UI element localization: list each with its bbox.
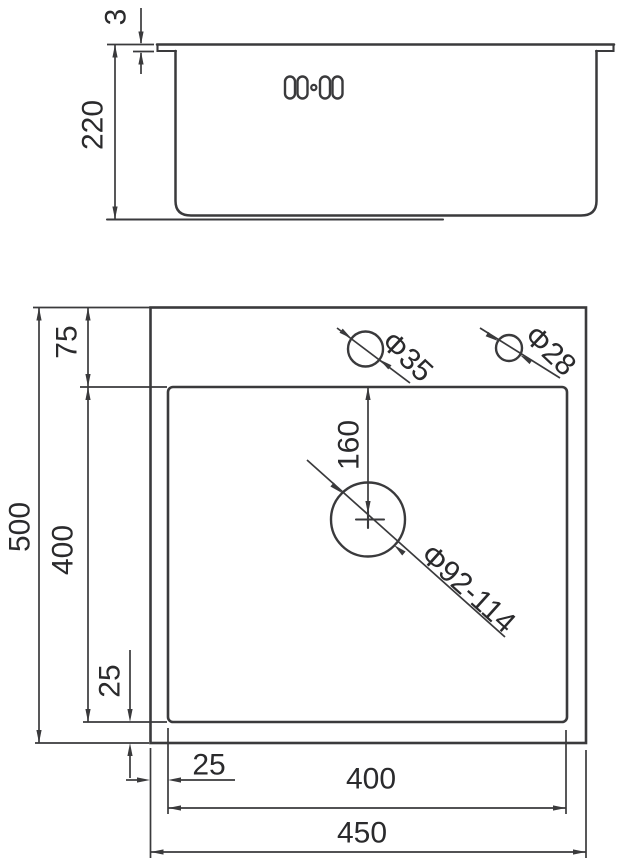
dim-label-rim-thickness: 3 (100, 9, 133, 26)
dim-label-bowl-depth: 220 (77, 100, 110, 150)
dim-label-overall-width: 450 (337, 817, 387, 850)
dim-bowl-left-offset: 25 (126, 749, 235, 783)
dim-label-accessory-hole: Φ28 (518, 319, 582, 382)
dim-label-bowl-bottom-offset: 25 (94, 664, 127, 697)
dim-rim-thickness: 3 (100, 8, 155, 74)
dim-overall-width: 450 (151, 817, 587, 855)
leader-faucet-hole: Φ35 (337, 325, 439, 388)
dim-ledge-offset: 75 (51, 308, 91, 388)
dim-overall-height: 500 (4, 308, 42, 744)
leader-drain-hole: Φ92-114 (307, 460, 522, 640)
drawing-svg: 3 220 (0, 0, 624, 863)
dim-label-drain-hole: Φ92-114 (414, 538, 522, 640)
dim-label-ledge-offset: 75 (51, 325, 84, 358)
dim-bowl-bottom-offset: 25 (94, 650, 133, 778)
dim-label-drain-offset: 160 (333, 420, 366, 470)
plan-view: 500 75 400 25 (4, 308, 587, 859)
overflow-holes-icon (285, 77, 343, 99)
dim-bowl-width: 400 (168, 763, 566, 811)
sink-technical-drawing: 3 220 (0, 0, 624, 863)
dim-label-overall-height: 500 (4, 502, 37, 552)
dim-label-bowl-left-offset: 25 (192, 749, 225, 782)
side-view: 3 220 (77, 8, 615, 220)
dim-drain-offset: 160 (333, 387, 371, 514)
accessory-hole-circle (496, 335, 522, 361)
dim-label-bowl-width: 400 (346, 763, 396, 796)
dim-bowl-depth: 220 (77, 45, 118, 220)
extension-lines (33, 308, 586, 859)
side-bowl-profile (176, 51, 597, 216)
dim-label-bowl-height: 400 (47, 525, 80, 575)
dim-label-faucet-hole: Φ35 (375, 325, 439, 388)
dim-bowl-height: 400 (47, 387, 91, 722)
